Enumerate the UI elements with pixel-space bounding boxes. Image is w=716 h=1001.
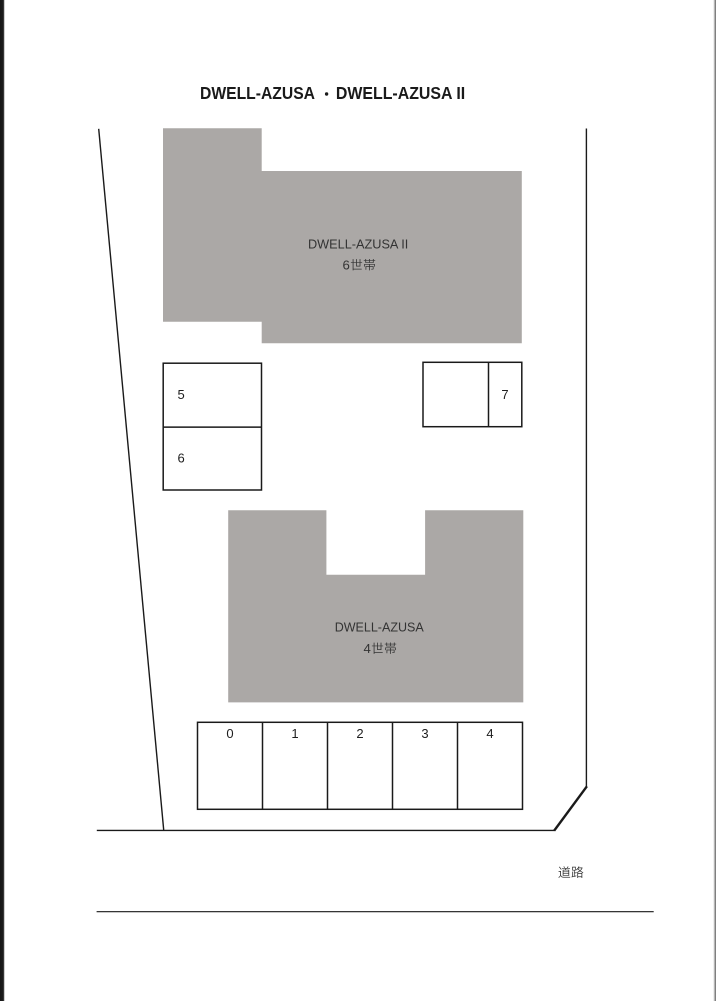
svg-text:2: 2 (356, 726, 363, 741)
svg-text:DWELL-AZUSA: DWELL-AZUSA (335, 620, 424, 635)
svg-text:3: 3 (421, 726, 428, 741)
svg-text:6: 6 (178, 450, 185, 465)
svg-text:DWELL-AZUSA II: DWELL-AZUSA II (336, 83, 465, 103)
svg-text:DWELL-AZUSA: DWELL-AZUSA (200, 83, 315, 103)
svg-text:7: 7 (501, 387, 508, 402)
svg-text:1: 1 (291, 726, 298, 741)
svg-text:4: 4 (364, 641, 371, 656)
svg-text:4: 4 (486, 726, 493, 741)
svg-text:6: 6 (343, 258, 350, 273)
svg-text:DWELL-AZUSA II: DWELL-AZUSA II (308, 237, 408, 252)
svg-text:5: 5 (178, 387, 185, 402)
svg-text:0: 0 (226, 726, 233, 741)
